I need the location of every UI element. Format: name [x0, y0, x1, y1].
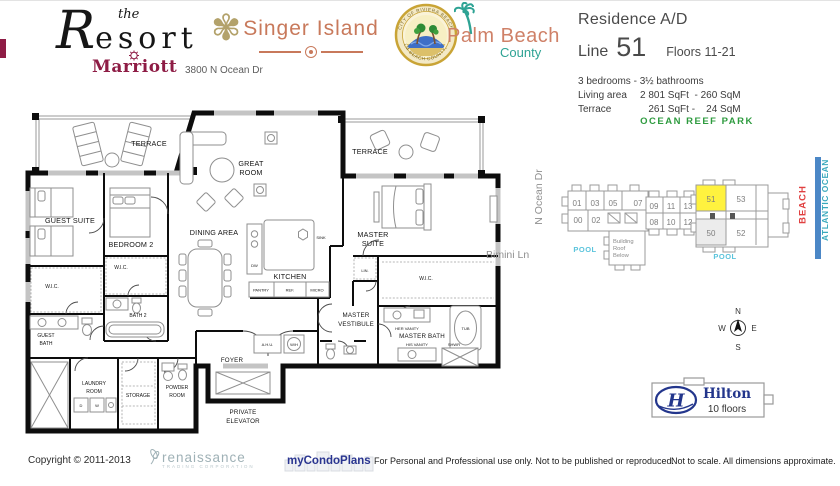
- floors-range: Floors 11-21: [666, 45, 735, 59]
- label-kitchen: KITCHEN: [274, 272, 307, 281]
- label-private-elevator-1: PRIVATE: [230, 409, 257, 416]
- compass-rose: N W E S: [713, 301, 763, 355]
- keyplan-right-building: 51 53 50 52: [691, 180, 789, 252]
- atlantic-ocean-label: ATLANTIC OCEAN: [820, 155, 830, 245]
- label-washer: W: [95, 403, 99, 408]
- line-number: 51: [616, 32, 646, 63]
- keyplan-roof-structure: Building Roof Below: [604, 231, 645, 270]
- compass-dot-icon: [305, 46, 317, 58]
- label-great-room-2: ROOM: [239, 168, 262, 177]
- bed-bath-text: 3 bedrooms - 3½ bathrooms: [578, 75, 741, 89]
- label-her-vanity: HER VANITY: [395, 326, 419, 331]
- unit-00: 00: [574, 216, 583, 225]
- beach-label: BEACH: [798, 185, 809, 225]
- label-guest-bath-1: GUEST: [37, 333, 54, 339]
- label-terrace-left: TERRACE: [131, 139, 167, 148]
- label-bath2: BATH 2: [129, 313, 146, 319]
- marriott-mark-icon: [128, 50, 140, 61]
- county-text: County: [500, 45, 541, 60]
- label-his-vanity: HIS VANITY: [406, 342, 428, 347]
- hilton-floors: 10 floors: [708, 404, 746, 415]
- n-ocean-dr-label: N Ocean Dr: [533, 161, 545, 233]
- terrace-area-value: 261 SqFt - 24 SqM: [640, 103, 741, 117]
- label-great-room-1: GREAT: [238, 159, 264, 168]
- compass-s: S: [735, 343, 740, 352]
- bimini-ln-label: Bimini Ln: [486, 249, 529, 261]
- unit-08: 08: [650, 218, 659, 227]
- roof-label-3: Below: [613, 253, 630, 259]
- unit-51: 51: [707, 195, 716, 204]
- compass-w: W: [718, 324, 726, 333]
- label-tub: TUB: [462, 326, 470, 331]
- site-keyplan: 01 03 05 07 00 02 09 11 13 08 10 12: [553, 119, 803, 271]
- address-text: 3800 N Ocean Dr: [185, 65, 263, 76]
- label-guest-suite: GUEST SUITE: [45, 216, 95, 225]
- unit-53: 53: [737, 195, 746, 204]
- compass-e: E: [751, 324, 756, 333]
- label-powder-2: ROOM: [169, 393, 185, 399]
- label-lin: LIN.: [361, 268, 368, 273]
- unit-07: 07: [634, 199, 643, 208]
- line-label: Line: [578, 43, 608, 61]
- residence-info: Residence A/D Line 51 Floors 11-21 3 bed…: [578, 11, 741, 117]
- living-area-value: 2 801 SqFt - 260 SqM: [640, 89, 741, 103]
- label-micro: MICRO: [310, 288, 323, 293]
- unit-10: 10: [667, 218, 676, 227]
- living-area-label: Living area: [578, 89, 640, 103]
- roof-label-2: Roof: [613, 246, 626, 252]
- label-wic-bedroom2: W.I.C.: [114, 265, 128, 271]
- kitchen-fixtures: [247, 220, 329, 297]
- utility-fixtures: [31, 335, 304, 428]
- dining-furniture: [179, 240, 231, 316]
- label-laundry-1: LAUNDRY: [82, 381, 106, 387]
- disclaimer-text: For Personal and Professional use only. …: [374, 456, 674, 466]
- label-terrace-right: TERRACE: [352, 147, 388, 156]
- label-wic-master: W.I.C.: [419, 276, 433, 282]
- singer-island-text: Singer Island: [241, 17, 381, 41]
- unit-01: 01: [573, 199, 582, 208]
- floorplan-sheet: the Resort ✾ Marriott 3800 N Ocean Dr Si…: [0, 0, 840, 486]
- singer-island-divider: [241, 46, 381, 58]
- page-edge-mark: [0, 39, 6, 58]
- label-ref: REF.: [286, 288, 295, 293]
- copyright-text: Copyright © 2011-2013: [28, 455, 131, 466]
- terrace-area-label: Terrace: [578, 103, 640, 117]
- bedroom2-bed: [110, 188, 150, 237]
- renaissance-text: renaissance: [162, 450, 246, 465]
- label-dw: DW: [251, 263, 258, 268]
- label-storage: STORAGE: [126, 393, 151, 399]
- unit-50: 50: [707, 229, 716, 238]
- label-master-suite-1: MASTER: [357, 230, 388, 239]
- label-laundry-2: ROOM: [86, 389, 102, 395]
- keyplan-middle-wing: 09 11 13 08 10 12: [646, 191, 696, 235]
- label-sink: SINK: [316, 235, 326, 240]
- label-powder-1: POWDER: [166, 385, 189, 391]
- label-wh: W/H: [290, 342, 298, 347]
- label-master-bath: MASTER BATH: [399, 333, 445, 340]
- label-pantry: PANTRY: [253, 288, 269, 293]
- pool-right-label: POOL: [713, 252, 736, 261]
- label-ahu: A.H.U.: [262, 342, 274, 347]
- residence-title: Residence A/D: [578, 11, 741, 29]
- singer-island-logo: Singer Island: [241, 17, 381, 58]
- mycondoplans-text: myCondoPlans: [287, 455, 371, 467]
- resort-logo-the: the: [118, 7, 139, 22]
- unit-11: 11: [667, 202, 676, 211]
- label-foyer: FOYER: [221, 357, 244, 364]
- flower-icon: ✾: [211, 5, 241, 51]
- label-wic-guest: W.I.C.: [45, 284, 59, 290]
- renaissance-flower-icon: [147, 448, 162, 465]
- scale-note-text: Not to scale. All dimensions approximate…: [671, 456, 836, 466]
- hilton-name: Hilton: [703, 386, 751, 402]
- floorplan-drawing: TERRACE TERRACE GREAT ROOM GUEST SUITE B…: [18, 96, 518, 456]
- unit-02: 02: [592, 216, 601, 225]
- label-master-suite-2: SUITE: [362, 239, 384, 248]
- label-master-vestibule-1: MASTER: [343, 312, 370, 319]
- renaissance-logo: renaissance TRADING CORPORATION: [147, 448, 255, 469]
- pool-left-label: POOL: [573, 245, 596, 254]
- roof-label-1: Building: [613, 239, 634, 245]
- label-shwr: SHWR: [448, 342, 460, 347]
- renaissance-subtext: TRADING CORPORATION: [147, 464, 255, 469]
- unit-05: 05: [609, 199, 618, 208]
- master-bed: [374, 184, 497, 230]
- label-dryer: D: [80, 403, 83, 408]
- unit-09: 09: [650, 202, 659, 211]
- unit-52: 52: [737, 229, 746, 238]
- keyplan-left-building: 01 03 05 07 00 02: [562, 185, 648, 231]
- unit-03: 03: [591, 199, 600, 208]
- label-dining-area: DINING AREA: [190, 228, 239, 237]
- label-guest-bath-2: BATH: [40, 341, 53, 347]
- area-table: Living area 2 801 SqFt - 260 SqM Terrace…: [578, 89, 741, 117]
- hilton-building: H Hilton 10 floors: [646, 377, 776, 425]
- compass-n: N: [735, 307, 741, 316]
- label-private-elevator-2: ELEVATOR: [226, 418, 260, 425]
- label-master-vestibule-2: VESTIBULE: [338, 321, 374, 328]
- mycondoplans-logo: myCondoPlans: [283, 448, 375, 472]
- label-bedroom2: BEDROOM 2: [109, 240, 154, 249]
